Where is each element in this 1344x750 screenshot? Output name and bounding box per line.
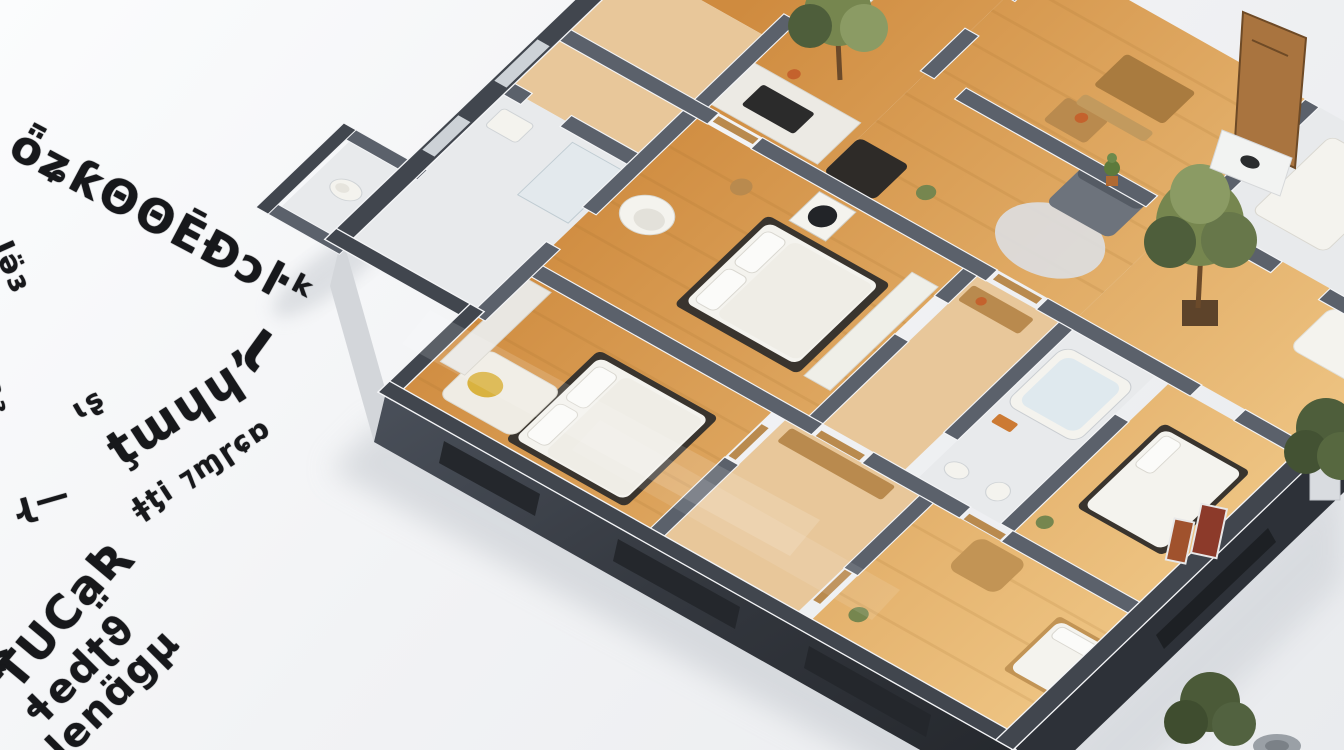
tree-foliage — [840, 4, 888, 52]
shrub-foliage — [1212, 702, 1256, 746]
shrub-foliage — [1164, 700, 1208, 744]
wheel-object — [1253, 734, 1301, 750]
tree-foliage — [1170, 164, 1230, 224]
tree-foliage — [1144, 216, 1196, 268]
tree-foliage — [788, 4, 832, 48]
tree-trunk — [838, 40, 840, 80]
screenshot-canvas: ȫʑƙΘΘĒĐɔŀᵏ ǀə̈ɜ Ɩ ɩʂ ţɯɥɥʼ ǂƫi ⁊ɱɼɕɒ ɻ— … — [0, 0, 1344, 750]
cactus-pot — [1106, 176, 1118, 186]
cactus-body — [1107, 153, 1117, 163]
